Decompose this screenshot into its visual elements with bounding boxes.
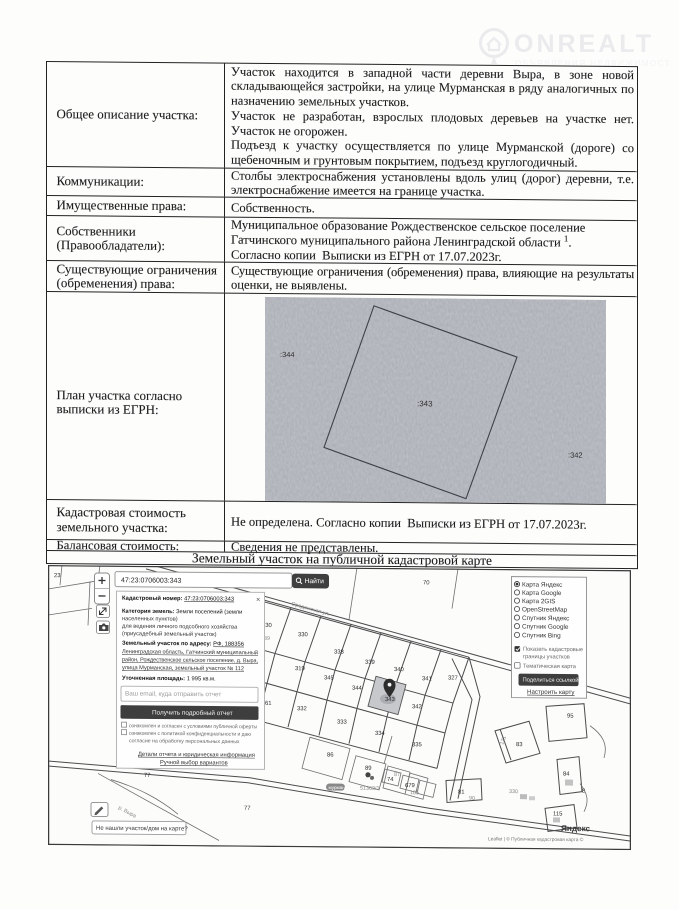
svg-text:Земельный участок по адресу: Р: Земельный участок по адресу: РФ, 188356 xyxy=(122,640,244,648)
svg-text:Кадастровый номер: 47:23:07060: Кадастровый номер: 47:23:0706003:343 xyxy=(122,595,234,603)
svg-text:Спутник Яндекс: Спутник Яндекс xyxy=(522,615,570,622)
svg-text:335: 335 xyxy=(412,742,423,748)
svg-text:330: 330 xyxy=(509,789,518,795)
svg-text:Ваш email, куда отправить отче: Ваш email, куда отправить отчет xyxy=(125,690,221,698)
svg-text:77: 77 xyxy=(144,773,151,779)
svg-text:мурман: мурман xyxy=(329,785,346,790)
svg-text:населенных пунктов): населенных пунктов) xyxy=(122,616,178,622)
svg-text:Яндекс: Яндекс xyxy=(561,824,591,833)
svg-text:84: 84 xyxy=(563,772,570,778)
svg-text:Спутник Google: Спутник Google xyxy=(522,623,569,630)
svg-text:105: 105 xyxy=(410,790,419,796)
svg-text:ознакомлен и согласен с услови: ознакомлен и согласен с условиями публич… xyxy=(129,722,257,730)
svg-text:Настроить карту: Настроить карту xyxy=(527,689,575,696)
svg-text:339: 339 xyxy=(365,660,375,666)
svg-text:340: 340 xyxy=(394,667,405,673)
svg-text:341: 341 xyxy=(422,676,432,682)
svg-text:70: 70 xyxy=(423,580,430,586)
svg-text:87: 87 xyxy=(394,772,400,778)
svg-text:(приусадебный земельный участо: (приусадебный земельный участок) xyxy=(122,630,217,638)
svg-text:343: 343 xyxy=(385,697,396,703)
svg-text::342: :342 xyxy=(568,451,583,460)
svg-text:334: 334 xyxy=(375,731,386,737)
svg-text:Карта Яндекс: Карта Яндекс xyxy=(522,581,563,588)
svg-text:90: 90 xyxy=(469,796,475,802)
svg-text:границы участков: границы участков xyxy=(523,654,570,660)
svg-text:Поделиться ссылкой: Поделиться ссылкой xyxy=(523,676,579,683)
svg-text:Спутник Bing: Спутник Bing xyxy=(522,632,561,639)
svg-text:Ленинградская область, Гатчин: Ленинградская область, Гатчинский муници… xyxy=(122,648,258,656)
svg-text:115: 115 xyxy=(553,811,563,817)
svg-text:Не нашли участок/дом на карте?: Не нашли участок/дом на карте? xyxy=(96,826,188,833)
svg-text:Получить подробный отчет: Получить подробный отчет xyxy=(152,708,233,717)
svg-text:Детали отчета и юридическая ин: Детали отчета и юридическая информация xyxy=(138,752,255,759)
svg-text:23: 23 xyxy=(54,573,61,579)
svg-text:344: 344 xyxy=(352,686,363,692)
svg-text:Тематическая карта: Тематическая карта xyxy=(523,664,577,670)
svg-text:95: 95 xyxy=(567,714,574,720)
svg-text:81: 81 xyxy=(458,790,465,796)
svg-text:47:23:0706003:343: 47:23:0706003:343 xyxy=(121,577,181,585)
svg-text:51363/1: 51363/1 xyxy=(360,786,379,792)
svg-text::343: :343 xyxy=(417,399,433,408)
svg-text:327: 327 xyxy=(448,676,458,682)
svg-text:86: 86 xyxy=(327,752,334,758)
svg-text:89: 89 xyxy=(365,766,372,772)
svg-text:Карта 2GIS: Карта 2GIS xyxy=(522,598,555,605)
svg-text:район, Рождественское сельское: район, Рождественское сельское поселение… xyxy=(122,656,258,664)
svg-text:ознакомлен с политикой конфиде: ознакомлен с политикой конфиденциальност… xyxy=(129,730,251,738)
svg-text:330: 330 xyxy=(298,632,309,638)
svg-text:319: 319 xyxy=(295,666,305,672)
svg-text:Ручной выбор вариантов: Ручной выбор вариантов xyxy=(160,759,228,767)
svg-text:332: 332 xyxy=(297,706,307,712)
svg-text:83: 83 xyxy=(516,742,523,748)
svg-text:Карта Google: Карта Google xyxy=(522,590,562,597)
svg-text::344: :344 xyxy=(280,350,295,359)
svg-text:61: 61 xyxy=(265,701,272,707)
svg-text:77: 77 xyxy=(244,806,251,812)
svg-text:Категория земель: Земли поселе: Категория земель: Земли поселений (земли xyxy=(122,608,242,616)
svg-text:345: 345 xyxy=(324,675,335,681)
svg-text:333: 333 xyxy=(337,720,348,726)
svg-text:согласие на обработку персонал: согласие на обработку персональных данны… xyxy=(129,738,240,745)
svg-text:Показать кадастровые: Показать кадастровые xyxy=(523,647,583,654)
svg-text:OpenStreetMap: OpenStreetMap xyxy=(522,606,568,613)
svg-text:улица Мурманская, земельный уч: улица Мурманская, земельный участок № 11… xyxy=(122,664,244,672)
svg-text:×: × xyxy=(256,595,260,604)
svg-text:338: 338 xyxy=(334,650,345,656)
svg-text:для ведения личного подсобного: для ведения личного подсобного хозяйства xyxy=(122,623,238,631)
svg-text:342: 342 xyxy=(412,704,422,710)
svg-text:Уточненная площадь: 1 995 кв.м: Уточненная площадь: 1 995 кв.м. xyxy=(122,676,216,683)
svg-text:Найти: Найти xyxy=(305,577,325,585)
svg-text:679: 679 xyxy=(405,783,415,789)
